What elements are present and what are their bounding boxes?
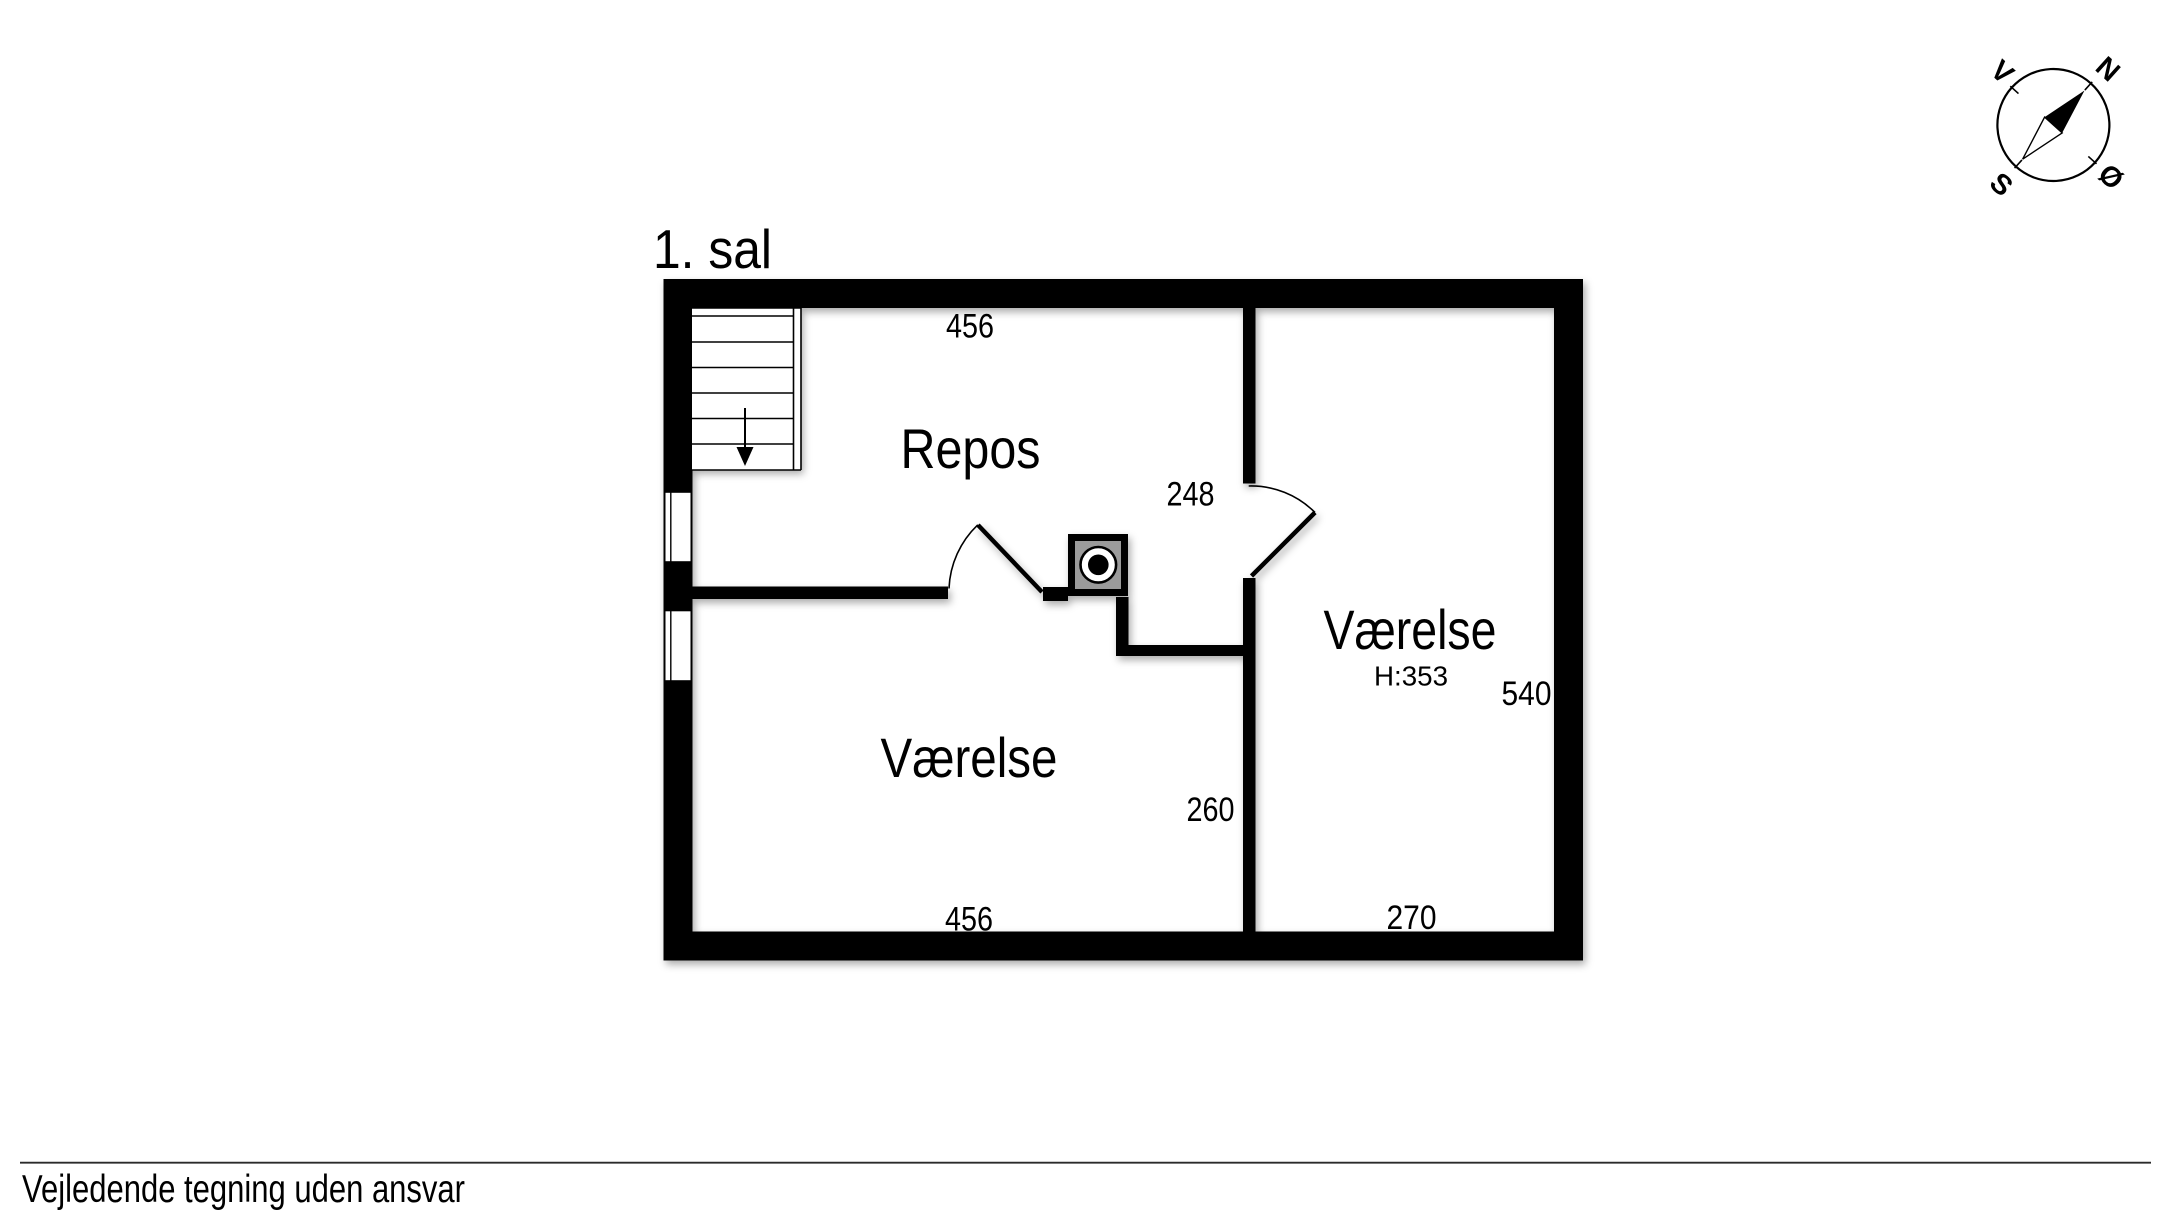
svg-text:1. sal: 1. sal — [653, 218, 772, 280]
svg-text:260: 260 — [1187, 791, 1235, 829]
svg-text:270: 270 — [1387, 899, 1437, 937]
svg-text:Repos: Repos — [901, 417, 1041, 480]
svg-text:540: 540 — [1502, 675, 1552, 713]
svg-text:Værelse: Værelse — [1324, 598, 1497, 661]
svg-text:Vejledende tegning uden ansvar: Vejledende tegning uden ansvar — [22, 1168, 465, 1211]
svg-text:456: 456 — [945, 901, 993, 939]
svg-text:H:353: H:353 — [1374, 661, 1448, 692]
svg-text:Værelse: Værelse — [881, 726, 1058, 789]
svg-text:248: 248 — [1167, 476, 1215, 514]
svg-text:456: 456 — [946, 308, 994, 346]
